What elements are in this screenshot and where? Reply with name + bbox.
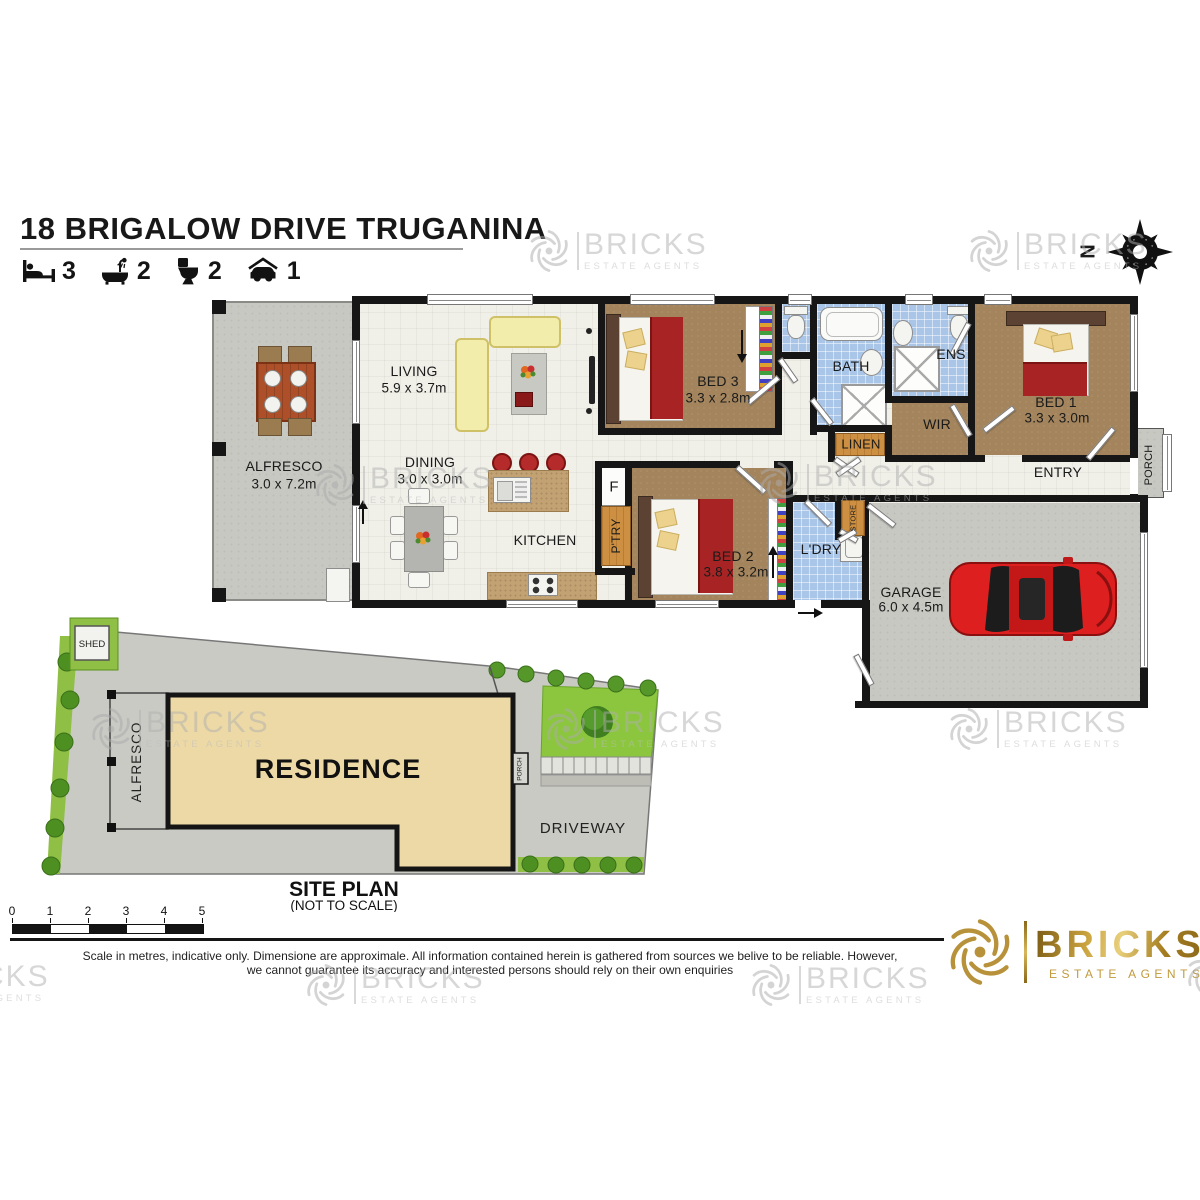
window	[506, 600, 578, 608]
bathrooms-feature: 2	[100, 257, 151, 286]
wall	[810, 425, 892, 432]
wall	[885, 396, 975, 403]
pantry-label: P'TRY	[609, 518, 623, 553]
flowers-icon	[518, 362, 538, 382]
exit-arrow-head	[814, 608, 823, 618]
robe-arrow	[772, 554, 774, 578]
wall	[786, 461, 793, 608]
toilets-feature: 2	[175, 257, 222, 286]
scale-bar: 0 1 2 3 4 5	[12, 904, 212, 936]
wall	[810, 296, 817, 435]
scale-tick-label: 3	[123, 904, 130, 918]
garage-feature: 1	[246, 257, 301, 286]
dining-chair	[443, 541, 458, 560]
bricks-watermark: BRICKSESTATE AGENTS	[0, 960, 50, 1006]
window	[1130, 314, 1138, 392]
pillow	[1051, 332, 1074, 352]
toilets-count: 2	[208, 257, 222, 286]
brand-logo: BRICKS ESTATE AGENTS	[944, 916, 1200, 988]
footer-divider	[10, 938, 944, 941]
bed3-label: BED 3	[697, 373, 738, 389]
entry-label: ENTRY	[1034, 464, 1082, 480]
kitchen-label: KITCHEN	[514, 532, 577, 548]
bed2-label: BED 2	[712, 548, 753, 564]
pillow	[625, 350, 648, 370]
wall	[598, 428, 782, 435]
window	[427, 294, 533, 305]
living-dims: 5.9 x 3.7m	[381, 381, 446, 396]
garage-label: GARAGE	[880, 584, 941, 600]
plate	[264, 370, 281, 387]
window	[630, 294, 715, 305]
site-alfresco-label: ALFRESCO	[129, 722, 144, 803]
site-porch-label: PORCH	[517, 757, 524, 781]
tv	[589, 356, 595, 404]
shed-label: SHED	[79, 639, 106, 650]
scale-tick-label: 1	[47, 904, 54, 918]
car-icon	[246, 257, 280, 285]
compass-rose-icon	[1104, 216, 1176, 288]
feature-summary: 3 2 2 1	[21, 255, 301, 287]
page: { "header": { "title": "18 BRIGALOW DRIV…	[0, 0, 1200, 1200]
window	[905, 294, 933, 305]
robe-arrow	[741, 330, 743, 354]
alfresco-label: ALFRESCO	[245, 458, 322, 474]
scale-tick-label: 4	[161, 904, 168, 918]
alfresco-table	[256, 362, 316, 422]
alfresco-dims: 3.0 x 7.2m	[251, 477, 316, 492]
bath-icon	[100, 257, 130, 285]
entry-arrow	[362, 508, 364, 524]
wall	[1022, 455, 1138, 462]
robe-arrow-head	[737, 354, 747, 363]
basin	[893, 320, 913, 346]
wall	[598, 296, 605, 435]
toilet-icon	[175, 257, 201, 285]
sofa	[489, 316, 561, 348]
bedrooms-feature: 3	[21, 257, 76, 286]
plate	[264, 396, 281, 413]
front-door-opening	[1130, 458, 1138, 494]
ens-label: ENS	[936, 346, 965, 362]
speaker	[586, 408, 592, 414]
plate	[290, 396, 307, 413]
tree-highlight	[583, 708, 605, 730]
wall	[968, 296, 975, 462]
dining-chair	[408, 572, 430, 588]
post	[212, 588, 226, 602]
robe-arrow-head	[768, 546, 778, 555]
exit-arrow	[798, 612, 814, 614]
bricks-logo-icon	[944, 916, 1016, 988]
site-plan-subtitle: (NOT TO SCALE)	[290, 898, 397, 912]
living-label: LIVING	[390, 363, 437, 379]
flowers-icon	[413, 528, 433, 548]
alfresco-chair	[258, 418, 282, 436]
scale-tick-label: 0	[9, 904, 16, 918]
dining-chair	[390, 541, 405, 560]
porch-label: PORCH	[1143, 445, 1155, 486]
sofa	[455, 338, 489, 432]
dining-label: DINING	[405, 454, 455, 470]
wall	[598, 461, 740, 468]
bed-blanket	[650, 317, 683, 419]
linen-label: LINEN	[841, 437, 880, 452]
bedrooms-count: 3	[62, 257, 76, 286]
window	[788, 294, 812, 305]
wall	[885, 455, 985, 462]
wall	[862, 600, 870, 708]
porch-steps	[1162, 434, 1172, 492]
brand-tagline: ESTATE AGENTS	[1049, 967, 1200, 981]
compass-north-label: N	[1078, 244, 1101, 258]
room-alfresco-floor	[212, 301, 358, 601]
sliding-door	[352, 340, 360, 424]
dining-dims: 3.0 x 3.0m	[397, 472, 462, 487]
wall	[782, 352, 817, 359]
bed3-dims: 3.3 x 2.8m	[685, 391, 750, 406]
sink-bowl	[497, 481, 513, 501]
bed-blanket	[1023, 362, 1087, 396]
fridge-label: F	[609, 479, 618, 496]
shower	[894, 346, 940, 392]
bed1-label: BED 1	[1035, 394, 1076, 410]
rug	[515, 392, 533, 407]
wall	[595, 568, 635, 575]
wall	[828, 432, 835, 462]
alfresco-chair	[288, 418, 312, 436]
page-title: 18 BRIGALOW DRIVE TRUGANINA	[20, 211, 547, 247]
brand-name: BRICKS	[1035, 924, 1200, 967]
entry-arrow-head	[358, 500, 368, 509]
disclaimer: Scale in metres, indicative only. Dimens…	[70, 949, 910, 977]
garage-dims: 6.0 x 4.5m	[878, 600, 943, 615]
bricks-watermark: BRICKSESTATE AGENTS	[946, 706, 1128, 752]
garage-count: 1	[287, 257, 301, 286]
bricks-watermark: BRICKSESTATE AGENTS	[526, 228, 708, 274]
window	[984, 294, 1012, 305]
bed1-dims: 3.3 x 3.0m	[1024, 411, 1089, 426]
residence-label: RESIDENCE	[255, 754, 422, 784]
toilet-cistern	[784, 306, 808, 315]
sliding-door	[352, 505, 360, 563]
dining-chair	[390, 516, 405, 535]
wir-label: WIR	[923, 416, 951, 432]
dining-chair	[408, 488, 430, 504]
scale-tick-label: 5	[199, 904, 206, 918]
scale-tick-label: 2	[85, 904, 92, 918]
sink-drainer	[515, 481, 527, 499]
bathtub-inner	[826, 312, 879, 337]
bath-label: BATH	[832, 358, 869, 374]
post	[212, 300, 226, 314]
shower	[841, 384, 887, 428]
bathrooms-count: 2	[137, 257, 151, 286]
wall	[885, 425, 892, 462]
post	[212, 442, 226, 456]
disclaimer-line1: Scale in metres, indicative only. Dimens…	[70, 949, 910, 963]
site-plan: SHED ALFRESCO PORCH RESIDENCE DRIVEWAY S…	[40, 612, 690, 912]
logo-divider	[1024, 921, 1027, 983]
robe-door	[745, 306, 760, 392]
bed2-dims: 3.8 x 3.2m	[703, 565, 768, 580]
title-underline	[20, 248, 463, 250]
bed-icon	[21, 258, 55, 284]
laundry-door-opening	[795, 600, 821, 608]
wall	[855, 701, 1148, 708]
car-top-view	[947, 556, 1119, 642]
toilet	[787, 315, 805, 339]
store-label: STORE	[849, 505, 858, 532]
laundry-label: L'DRY	[801, 541, 842, 557]
scale-bar-segments	[12, 924, 204, 934]
speaker	[586, 328, 592, 334]
dining-chair	[443, 516, 458, 535]
disclaimer-line2: we cannot guarantee its accuracy and int…	[70, 963, 910, 977]
window	[655, 600, 719, 608]
wall	[885, 296, 892, 403]
garage-door	[1140, 532, 1148, 668]
driveway-label: DRIVEWAY	[540, 820, 626, 837]
gravel-strip	[541, 775, 651, 786]
plate	[290, 370, 307, 387]
stove	[528, 574, 558, 596]
alfresco-bbq	[326, 568, 350, 602]
